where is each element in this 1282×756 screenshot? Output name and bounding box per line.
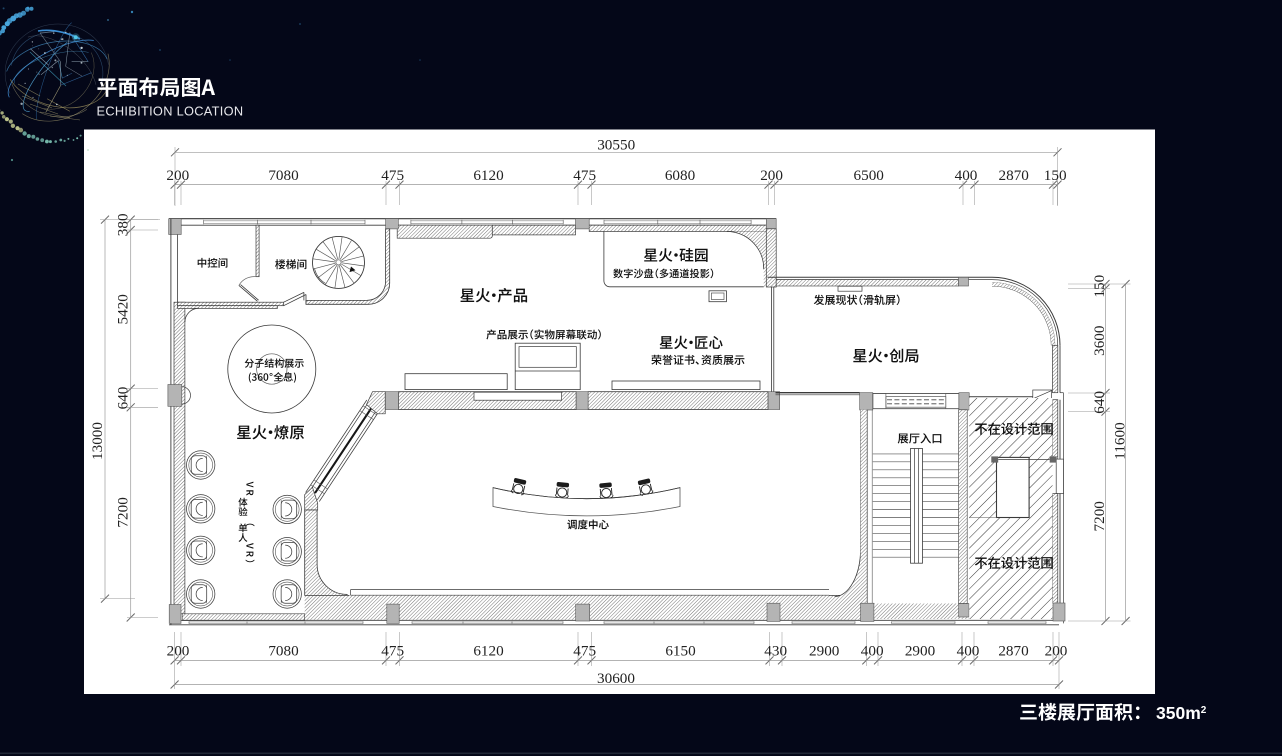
svg-text:640: 640: [115, 386, 132, 409]
svg-text:200: 200: [166, 167, 189, 184]
svg-text:6080: 6080: [665, 167, 696, 184]
svg-text:7200: 7200: [1091, 501, 1108, 532]
svg-text:5420: 5420: [115, 294, 132, 325]
svg-text:2900: 2900: [905, 643, 936, 660]
svg-text:640: 640: [1091, 391, 1108, 414]
svg-text:350m2: 350m2: [1156, 703, 1207, 723]
svg-text:6120: 6120: [473, 167, 504, 184]
svg-text:6500: 6500: [854, 167, 885, 184]
svg-text:3600: 3600: [1091, 325, 1108, 356]
svg-text:2870: 2870: [998, 643, 1029, 660]
svg-text:400: 400: [955, 167, 978, 184]
svg-text:6150: 6150: [665, 643, 696, 660]
svg-text:ECHIBITION LOCATION: ECHIBITION LOCATION: [97, 104, 244, 119]
svg-text:200: 200: [167, 643, 190, 660]
svg-text:7080: 7080: [268, 643, 299, 660]
svg-text:2900: 2900: [809, 643, 840, 660]
svg-text:200: 200: [1045, 643, 1068, 660]
svg-text:7080: 7080: [268, 167, 299, 184]
svg-text:11600: 11600: [1112, 422, 1129, 460]
svg-text:400: 400: [861, 643, 884, 660]
svg-text:475: 475: [573, 167, 596, 184]
svg-text:200: 200: [760, 167, 783, 184]
svg-text:30550: 30550: [597, 137, 635, 154]
svg-text:30600: 30600: [597, 670, 635, 687]
svg-text:380: 380: [115, 213, 132, 236]
svg-text:7200: 7200: [115, 497, 132, 528]
svg-text:6120: 6120: [473, 643, 504, 660]
svg-text:475: 475: [381, 167, 404, 184]
svg-text:430: 430: [764, 643, 787, 660]
svg-text:400: 400: [957, 643, 980, 660]
svg-text:150: 150: [1044, 167, 1067, 184]
svg-text:2870: 2870: [999, 167, 1030, 184]
svg-text:475: 475: [573, 643, 596, 660]
svg-text:475: 475: [381, 643, 404, 660]
svg-text:150: 150: [1091, 274, 1108, 297]
svg-text:13000: 13000: [89, 422, 106, 460]
